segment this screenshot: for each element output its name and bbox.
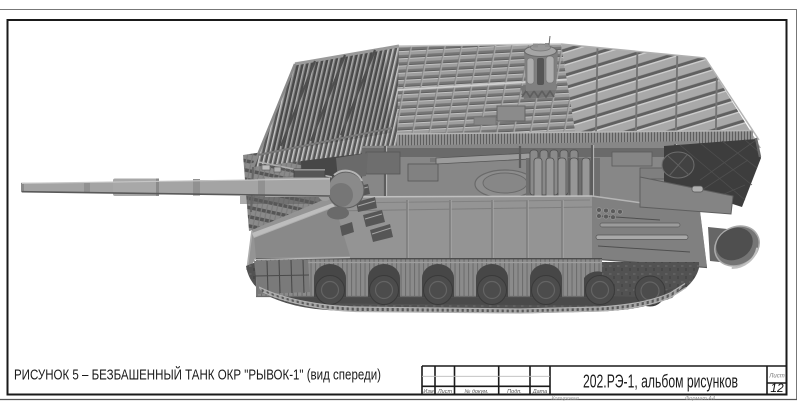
svg-text:Копировал: Копировал — [551, 396, 578, 401]
svg-text:12: 12 — [770, 381, 784, 395]
svg-text:Лист: Лист — [768, 374, 784, 380]
svg-text:Лист: Лист — [437, 389, 453, 395]
svg-text:Дата: Дата — [532, 389, 548, 395]
svg-text:Изм: Изм — [423, 389, 433, 395]
svg-text:202.РЭ-1, альбом рисунков: 202.РЭ-1, альбом рисунков — [583, 372, 738, 392]
svg-text:РИСУНОК 5 – БЕЗБАШЕННЫЙ ТАНК О: РИСУНОК 5 – БЕЗБАШЕННЫЙ ТАНК ОКР "РЫВОК-… — [14, 366, 381, 384]
svg-text:№ докум.: № докум. — [464, 389, 488, 395]
svg-text:Подп.: Подп. — [507, 389, 522, 395]
svg-text:Формат А4: Формат А4 — [685, 396, 715, 401]
